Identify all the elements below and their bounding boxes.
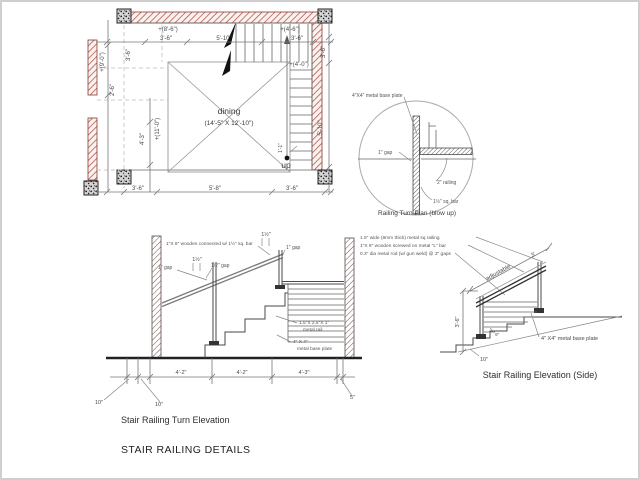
dim: +(8'-6") [158, 27, 177, 33]
side-note-leaders [455, 237, 543, 295]
dim: 5'-10" [216, 36, 231, 42]
base-plate [275, 285, 285, 289]
dim-ext [262, 238, 269, 246]
turnplan-caption: Railing Turn Plan (blow up) [378, 210, 456, 217]
dim: 3'-6" [321, 46, 327, 58]
plan-post [318, 9, 332, 23]
elev-left-column [152, 236, 161, 358]
leader [206, 268, 212, 278]
up-label: up [281, 160, 291, 170]
leader [421, 187, 432, 200]
side-elevation-caption: Stair Railing Elevation (Side) [483, 370, 598, 380]
dim: +(9'-0") [100, 52, 106, 71]
note-wooden: 1"X 8" wooden connected w/ 1½" sq. bar [166, 240, 253, 247]
dim-five: 5" [350, 395, 355, 401]
leader [399, 152, 411, 161]
dim-leaders [104, 379, 352, 402]
plan-right-wall [312, 23, 322, 170]
room-size-label: (14'-5" X 12'-10") [204, 120, 253, 127]
stair-profile [205, 293, 288, 358]
leader [470, 349, 479, 356]
room-label: dining [218, 106, 241, 116]
up-arrow-icon [284, 35, 290, 44]
note-plate-1: 4" X 4" [293, 339, 308, 345]
turnplan-rail-horizontal [420, 148, 472, 155]
leader [277, 335, 291, 342]
plan-top-wall [131, 12, 318, 23]
plan-post [117, 9, 131, 23]
side-rail-rods [484, 302, 537, 332]
drawing-canvas: up dining (14'-5" X 12'-10") +(8'-6") 3'… [0, 0, 640, 480]
base-plate [476, 334, 486, 339]
dim-seg2: 4'-2" [237, 370, 248, 376]
side-top-rail [476, 266, 546, 307]
dim-seg3: 4'-3" [299, 370, 310, 376]
gap-b: 1" gap [158, 265, 173, 271]
note-metal-rail-2: metal rail [303, 327, 322, 333]
tread-dim: 10" [480, 357, 488, 363]
side-elevation: 1.5" wide (8mm thick) metal sq railing 1… [360, 235, 622, 380]
railing-turn-plan: 4"X4" metal base plate 1" gap 2" railing… [352, 93, 476, 217]
stair-treads-right [290, 70, 312, 160]
height-dim-label: 3'-6" [455, 316, 461, 327]
plan-post [84, 181, 98, 195]
dim: 3'-6" [160, 36, 172, 42]
landing-top-rail [282, 282, 344, 285]
base-plate [209, 341, 219, 345]
riser-dim: 9" [495, 332, 500, 338]
leader [404, 97, 417, 134]
gap-a: 1" gap [286, 245, 301, 251]
note-base-plate: 4"X4" metal base plate [352, 93, 403, 99]
turn-elevation: 1"X 8" wooden connected w/ 1½" sq. bar 1… [95, 231, 362, 425]
dim-seg1: 4'-2" [176, 370, 187, 376]
gap-half: 1/2" gap [211, 263, 230, 269]
dim: 3'-6" [286, 186, 298, 192]
note-gap: 1" gap [378, 150, 393, 156]
plan-post [318, 170, 332, 184]
break-arrow-icon [224, 22, 236, 48]
note-plate-2: metal base plate [297, 346, 333, 352]
landing-rail-rods [288, 284, 344, 342]
sloped-top-rail [162, 254, 283, 307]
dining-cross [168, 62, 290, 172]
dim: +(11'-0") [155, 118, 161, 140]
floor-plan: up dining (14'-5" X 12'-10") +(8'-6") 3'… [84, 9, 334, 195]
note-metal-rail-1: 1.5"X 2.5"X 1" [299, 320, 329, 326]
leader [436, 158, 447, 181]
turnplan-rail-vertical [413, 116, 420, 214]
note-sq-bar: 1½" sq. bar [433, 198, 459, 205]
sheet-title: STAIR RAILING DETAILS [121, 444, 250, 456]
adjustable-label: adjustable [485, 264, 512, 283]
leader [177, 270, 207, 280]
dim: 3'-6" [291, 36, 303, 42]
dim-a: 1½" [261, 231, 271, 238]
dim: +(4'-0") [289, 62, 308, 68]
dim: 4'-3" [140, 133, 146, 145]
turn-elevation-caption: Stair Railing Turn Elevation [121, 415, 230, 425]
elev-right-column [345, 238, 354, 358]
plan-left-wall-upper [88, 40, 97, 95]
break-arrow-icon [222, 50, 231, 76]
dim: 1'-1" [278, 143, 284, 153]
dim-extensions [127, 358, 343, 384]
plan-dim-left [108, 20, 150, 192]
dim-ten2: 10" [155, 402, 163, 408]
dim: 2'-6" [110, 84, 116, 96]
side-note-1: 1.5" wide (8mm thick) metal sq railing [360, 235, 440, 241]
dim: 3'-6" [132, 186, 144, 192]
side-note-3: 0.3" dia metal rod (w/ gun weld) @ 3" ga… [360, 251, 452, 257]
dim-ext [193, 263, 200, 271]
leader [258, 246, 270, 255]
dim-ten1: 10" [95, 400, 103, 406]
dim: +(4'-6") [280, 27, 299, 33]
side-base-plate-note: 4" X4" metal base plate [541, 336, 598, 342]
dim-b: 1½" [192, 256, 202, 263]
plan-left-wall-lower [88, 118, 97, 180]
dim: 5'-10" [318, 120, 324, 135]
side-note-2: 1"X 8" wooden screwed on metal "L" bar [360, 243, 446, 249]
note-railing: 2" railing [437, 180, 457, 186]
leader [276, 316, 297, 323]
cad-sheet: up dining (14'-5" X 12'-10") +(8'-6") 3'… [0, 0, 640, 480]
dim: 3'-6" [126, 49, 132, 61]
dim: 5'-8" [209, 186, 221, 192]
turnplan-balusters [429, 122, 436, 148]
